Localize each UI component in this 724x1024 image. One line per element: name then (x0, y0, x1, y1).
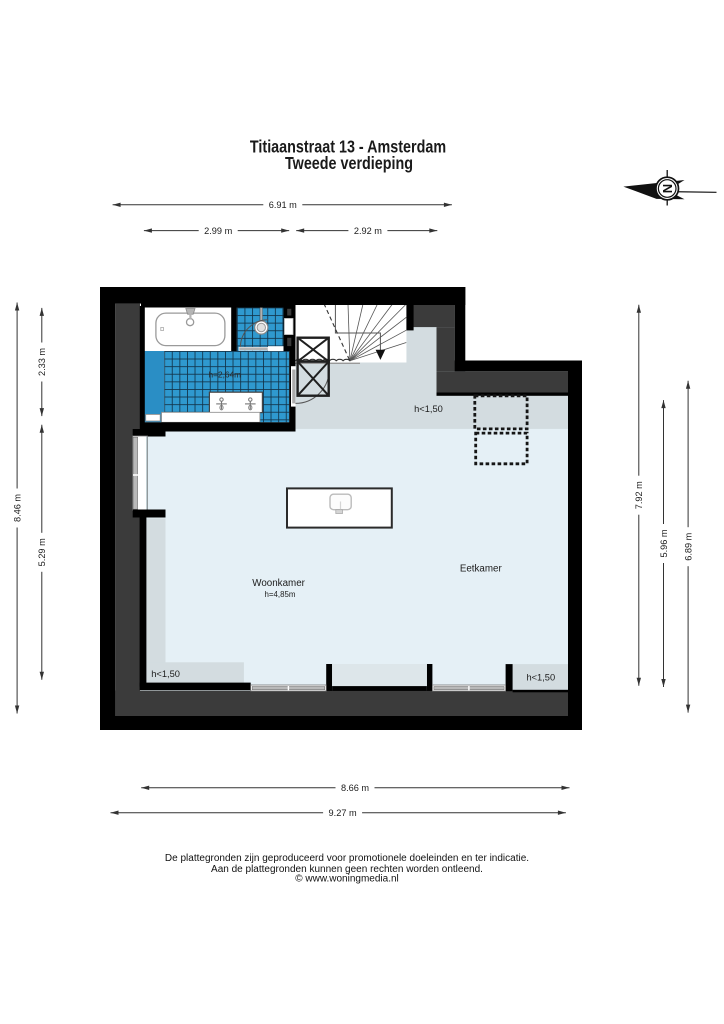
svg-text:N: N (660, 184, 675, 193)
svg-text:8.66 m: 8.66 m (341, 783, 369, 793)
svg-text:h=4,85m: h=4,85m (265, 590, 296, 599)
svg-text:© www.woningmedia.nl: © www.woningmedia.nl (295, 874, 399, 885)
svg-text:9.27 m: 9.27 m (329, 808, 357, 818)
svg-text:8.46 m: 8.46 m (12, 494, 22, 522)
svg-text:7.92 m: 7.92 m (634, 481, 644, 509)
svg-text:Woonkamer: Woonkamer (252, 578, 305, 589)
svg-text:2.92 m: 2.92 m (354, 226, 382, 236)
svg-text:6.89 m: 6.89 m (683, 532, 693, 560)
svg-text:h<1,50: h<1,50 (414, 404, 443, 414)
svg-text:De plattegronden zijn geproduc: De plattegronden zijn geproduceerd voor … (165, 853, 529, 864)
svg-text:2.99 m: 2.99 m (204, 226, 232, 236)
svg-text:h<1,50: h<1,50 (526, 673, 555, 683)
svg-text:h<1,50: h<1,50 (151, 669, 180, 679)
svg-text:Tweede verdieping: Tweede verdieping (285, 155, 413, 174)
svg-text:6.91 m: 6.91 m (269, 200, 297, 210)
svg-text:h=2,64m: h=2,64m (209, 370, 242, 380)
svg-text:5.29 m: 5.29 m (37, 538, 47, 566)
svg-text:5.96 m: 5.96 m (659, 529, 669, 557)
svg-text:Eetkamer: Eetkamer (460, 563, 503, 574)
svg-text:2.33 m: 2.33 m (37, 348, 47, 376)
